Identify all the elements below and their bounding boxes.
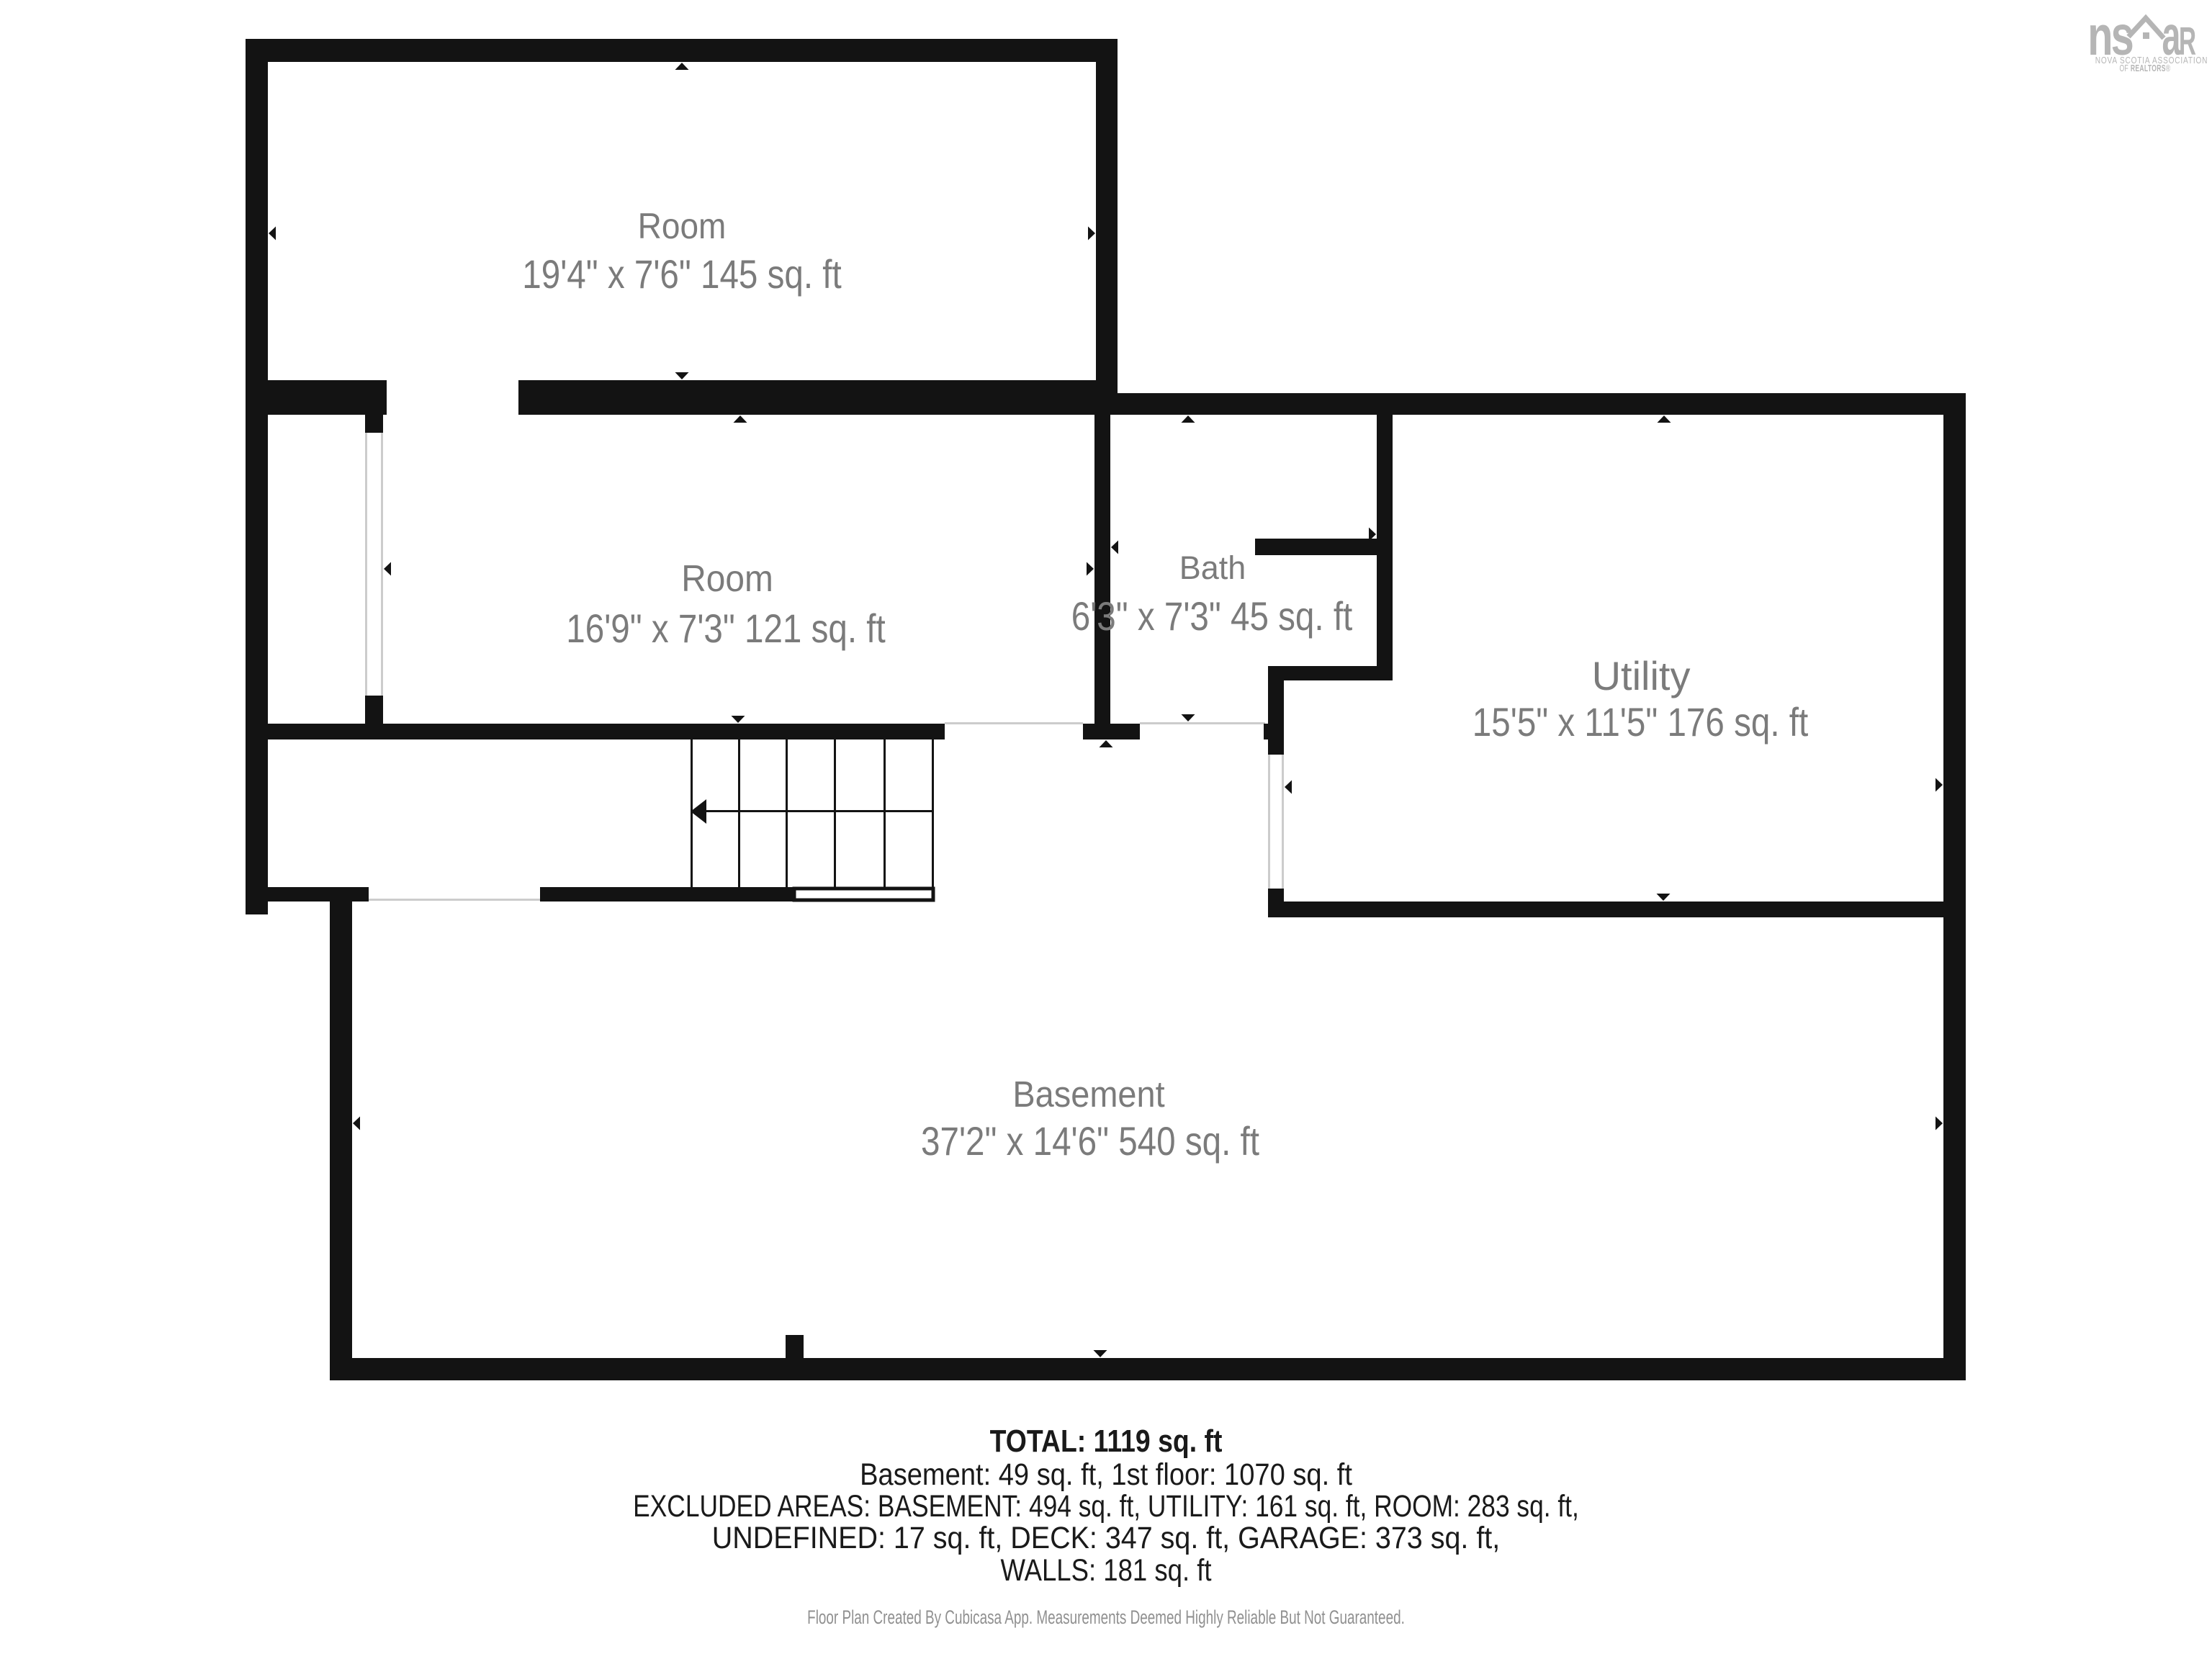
- svg-text:OF REALTORS®: OF REALTORS®: [2120, 63, 2171, 73]
- svg-text:Room: Room: [638, 207, 727, 246]
- svg-text:15'5" x 11'5" 176 sq. ft: 15'5" x 11'5" 176 sq. ft: [1473, 700, 1809, 745]
- svg-text:Basement: Basement: [1012, 1074, 1165, 1115]
- svg-text:TOTAL: 1119 sq. ft: TOTAL: 1119 sq. ft: [990, 1423, 1223, 1459]
- svg-text:19'4" x 7'6" 145 sq. ft: 19'4" x 7'6" 145 sq. ft: [522, 252, 842, 297]
- svg-text:Floor Plan Created By Cubicasa: Floor Plan Created By Cubicasa App. Meas…: [807, 1606, 1405, 1628]
- svg-text:Bath: Bath: [1179, 549, 1246, 586]
- svg-text:Room: Room: [681, 557, 773, 599]
- svg-text:16'9" x 7'3" 121 sq. ft: 16'9" x 7'3" 121 sq. ft: [566, 606, 886, 651]
- svg-text:6'3" x 7'3" 45 sq. ft: 6'3" x 7'3" 45 sq. ft: [1071, 594, 1353, 639]
- svg-text:37'2" x 14'6" 540 sq. ft: 37'2" x 14'6" 540 sq. ft: [921, 1119, 1259, 1164]
- svg-text:UNDEFINED: 17 sq. ft, DECK: 34: UNDEFINED: 17 sq. ft, DECK: 347 sq. ft, …: [712, 1520, 1500, 1555]
- svg-text:Utility: Utility: [1592, 653, 1691, 698]
- svg-text:EXCLUDED AREAS: BASEMENT: 494: EXCLUDED AREAS: BASEMENT: 494 sq. ft, UT…: [633, 1489, 1579, 1524]
- svg-text:WALLS: 181 sq. ft: WALLS: 181 sq. ft: [1000, 1553, 1211, 1587]
- svg-text:Basement: 49 sq. ft, 1st floor: Basement: 49 sq. ft, 1st floor: 1070 sq.…: [860, 1457, 1352, 1492]
